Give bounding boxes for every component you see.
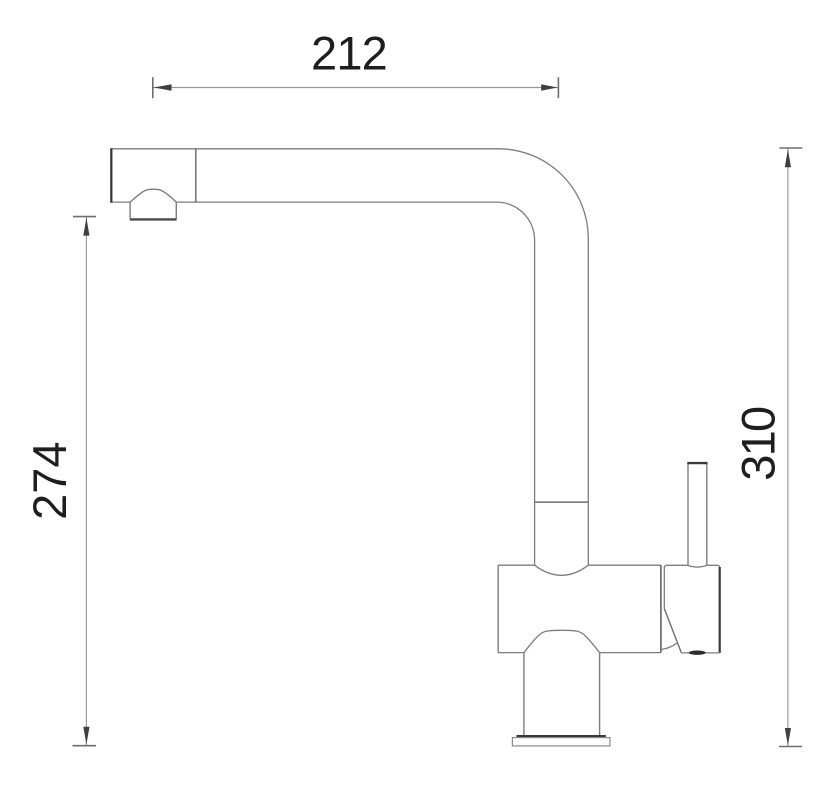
svg-text:274: 274: [23, 441, 76, 519]
svg-text:212: 212: [311, 27, 387, 80]
svg-text:310: 310: [731, 407, 784, 481]
